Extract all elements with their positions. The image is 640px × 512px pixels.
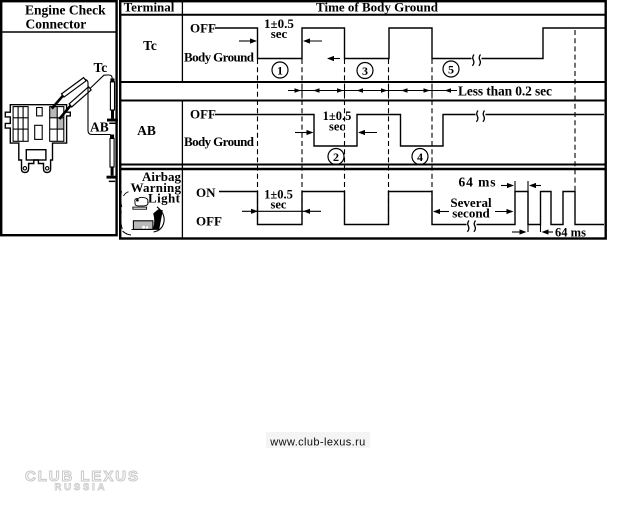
svg-text:64 ms: 64 ms (555, 226, 586, 240)
svg-text:Light: Light (148, 191, 181, 206)
svg-text:sec: sec (271, 198, 287, 212)
svg-text:3: 3 (362, 64, 368, 78)
svg-text:second: second (452, 206, 490, 221)
svg-text:AB: AB (90, 120, 109, 135)
svg-text:sec: sec (271, 26, 288, 41)
svg-text:RUSSIA: RUSSIA (55, 482, 107, 493)
svg-text:AB: AB (137, 123, 156, 138)
svg-text:Connector: Connector (26, 17, 87, 32)
svg-text:Terminal: Terminal (124, 0, 175, 15)
svg-text:4: 4 (417, 150, 423, 164)
svg-text:64 ms: 64 ms (459, 175, 497, 190)
svg-text:OFF: OFF (190, 107, 216, 122)
svg-text:5: 5 (448, 63, 454, 77)
svg-text:Less than 0.2 sec: Less than 0.2 sec (458, 84, 552, 99)
svg-text:OFF: OFF (190, 21, 216, 36)
svg-text:Tc: Tc (94, 60, 108, 75)
svg-text:Engine Check: Engine Check (25, 3, 106, 18)
svg-text:1: 1 (277, 64, 283, 78)
svg-text:OFF: OFF (196, 214, 222, 229)
svg-text:2: 2 (333, 150, 339, 164)
svg-text:sec: sec (329, 120, 345, 134)
svg-text:Body Ground: Body Ground (184, 50, 255, 65)
svg-text:Body Ground: Body Ground (184, 134, 255, 149)
svg-text:ON: ON (196, 185, 216, 200)
svg-text:Time of Body Ground: Time of Body Ground (316, 0, 439, 15)
svg-text:www.club-lexus.ru: www.club-lexus.ru (269, 437, 365, 449)
svg-text:Tc: Tc (143, 38, 157, 53)
